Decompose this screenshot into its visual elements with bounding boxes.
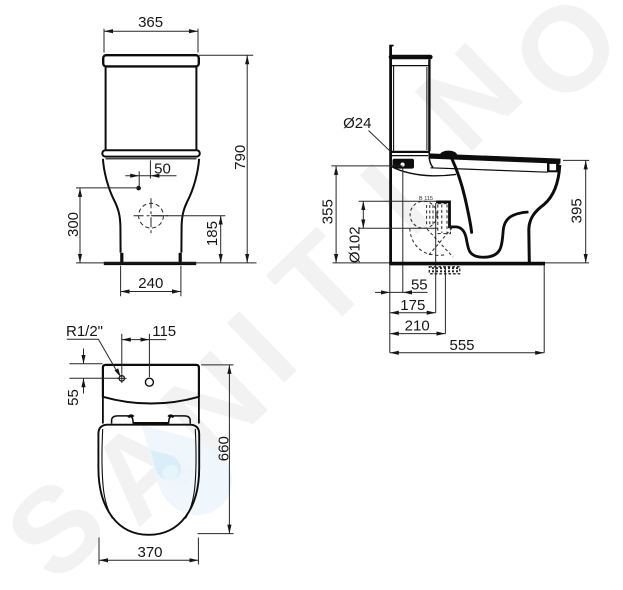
svg-text:175: 175 <box>400 297 425 314</box>
svg-text:55: 55 <box>411 277 428 294</box>
svg-text:395: 395 <box>568 198 585 223</box>
svg-text:55: 55 <box>65 389 82 406</box>
svg-text:115: 115 <box>152 323 176 340</box>
svg-text:300: 300 <box>65 212 82 237</box>
svg-text:240: 240 <box>138 275 163 292</box>
svg-text:355: 355 <box>320 199 337 224</box>
svg-text:Ø24: Ø24 <box>343 115 371 132</box>
svg-text:660: 660 <box>216 436 233 461</box>
svg-text:Ø102: Ø102 <box>347 226 364 263</box>
svg-text:365: 365 <box>138 14 163 31</box>
svg-text:185: 185 <box>204 221 221 246</box>
svg-text:R1/2": R1/2" <box>66 323 103 340</box>
svg-text:555: 555 <box>449 337 474 354</box>
svg-text:790: 790 <box>232 145 249 170</box>
svg-text:370: 370 <box>137 544 162 561</box>
svg-text:210: 210 <box>405 318 430 335</box>
